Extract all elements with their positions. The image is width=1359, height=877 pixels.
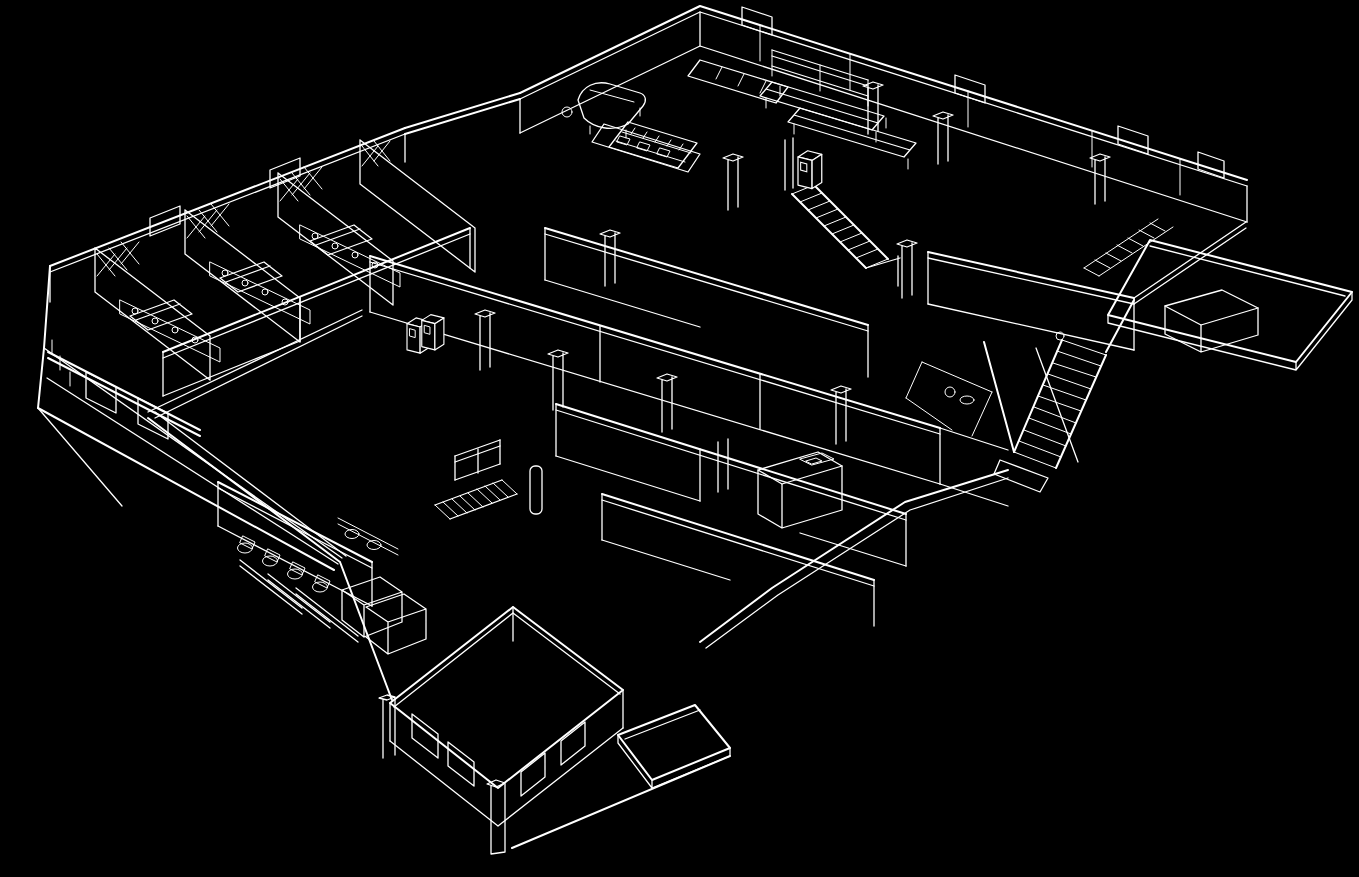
marker-cabinet-pair[interactable]	[407, 315, 444, 354]
background	[0, 0, 1359, 877]
marker-cabinet-single[interactable]	[798, 151, 822, 189]
floorplan-viewport	[0, 0, 1359, 877]
floorplan-canvas	[0, 0, 1359, 877]
